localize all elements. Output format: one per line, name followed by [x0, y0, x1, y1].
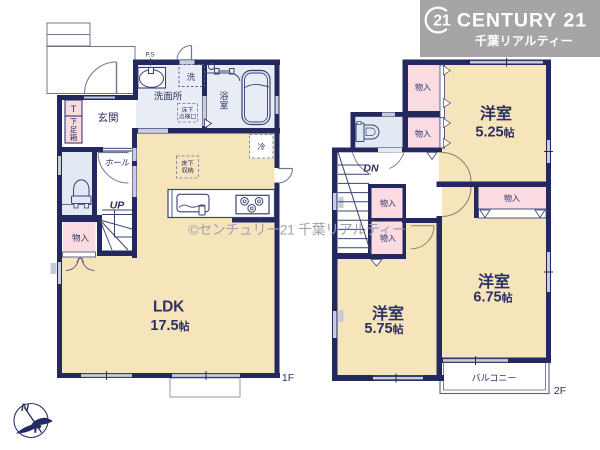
svg-text:洗面所: 洗面所 — [154, 91, 183, 103]
svg-text:N: N — [21, 402, 30, 414]
svg-text:床下収納: 床下収納 — [181, 160, 193, 175]
svg-text:17.5帖: 17.5帖 — [150, 318, 189, 334]
svg-text:ホール: ホール — [104, 158, 129, 168]
svg-text:5.75帖: 5.75帖 — [364, 321, 403, 337]
svg-text:洋室: 洋室 — [478, 272, 510, 291]
svg-text:洗: 洗 — [187, 72, 196, 82]
svg-text:バルコニー: バルコニー — [472, 373, 517, 383]
svg-text:洋室: 洋室 — [480, 104, 512, 123]
svg-text:T: T — [71, 104, 77, 114]
svg-text:21: 21 — [433, 13, 451, 30]
svg-text:玄関: 玄関 — [98, 111, 119, 124]
svg-text:UP: UP — [110, 200, 126, 212]
svg-text:LDK: LDK — [153, 299, 185, 316]
svg-text:下足箱: 下足箱 — [70, 117, 78, 142]
svg-text:6.75帖: 6.75帖 — [473, 290, 512, 306]
svg-text:CENTURY 21: CENTURY 21 — [457, 10, 587, 32]
svg-text:千葉リアルティー: 千葉リアルティー — [475, 33, 573, 48]
svg-text:物入: 物入 — [72, 233, 90, 243]
svg-text:P.S: P.S — [146, 53, 155, 59]
svg-text:物入: 物入 — [380, 198, 396, 208]
svg-text:2F: 2F — [554, 385, 566, 397]
svg-text:物入: 物入 — [504, 193, 520, 203]
svg-text:1F: 1F — [282, 372, 294, 384]
svg-text:物入: 物入 — [415, 129, 431, 139]
svg-text:冷: 冷 — [258, 142, 266, 152]
svg-text:5.25帖: 5.25帖 — [475, 125, 514, 141]
svg-text:©センチュリー21 千葉リアルティー: ©センチュリー21 千葉リアルティー — [188, 222, 406, 238]
svg-text:物入: 物入 — [415, 82, 431, 92]
svg-text:DN: DN — [363, 163, 379, 175]
svg-text:浴室: 浴室 — [219, 91, 228, 111]
